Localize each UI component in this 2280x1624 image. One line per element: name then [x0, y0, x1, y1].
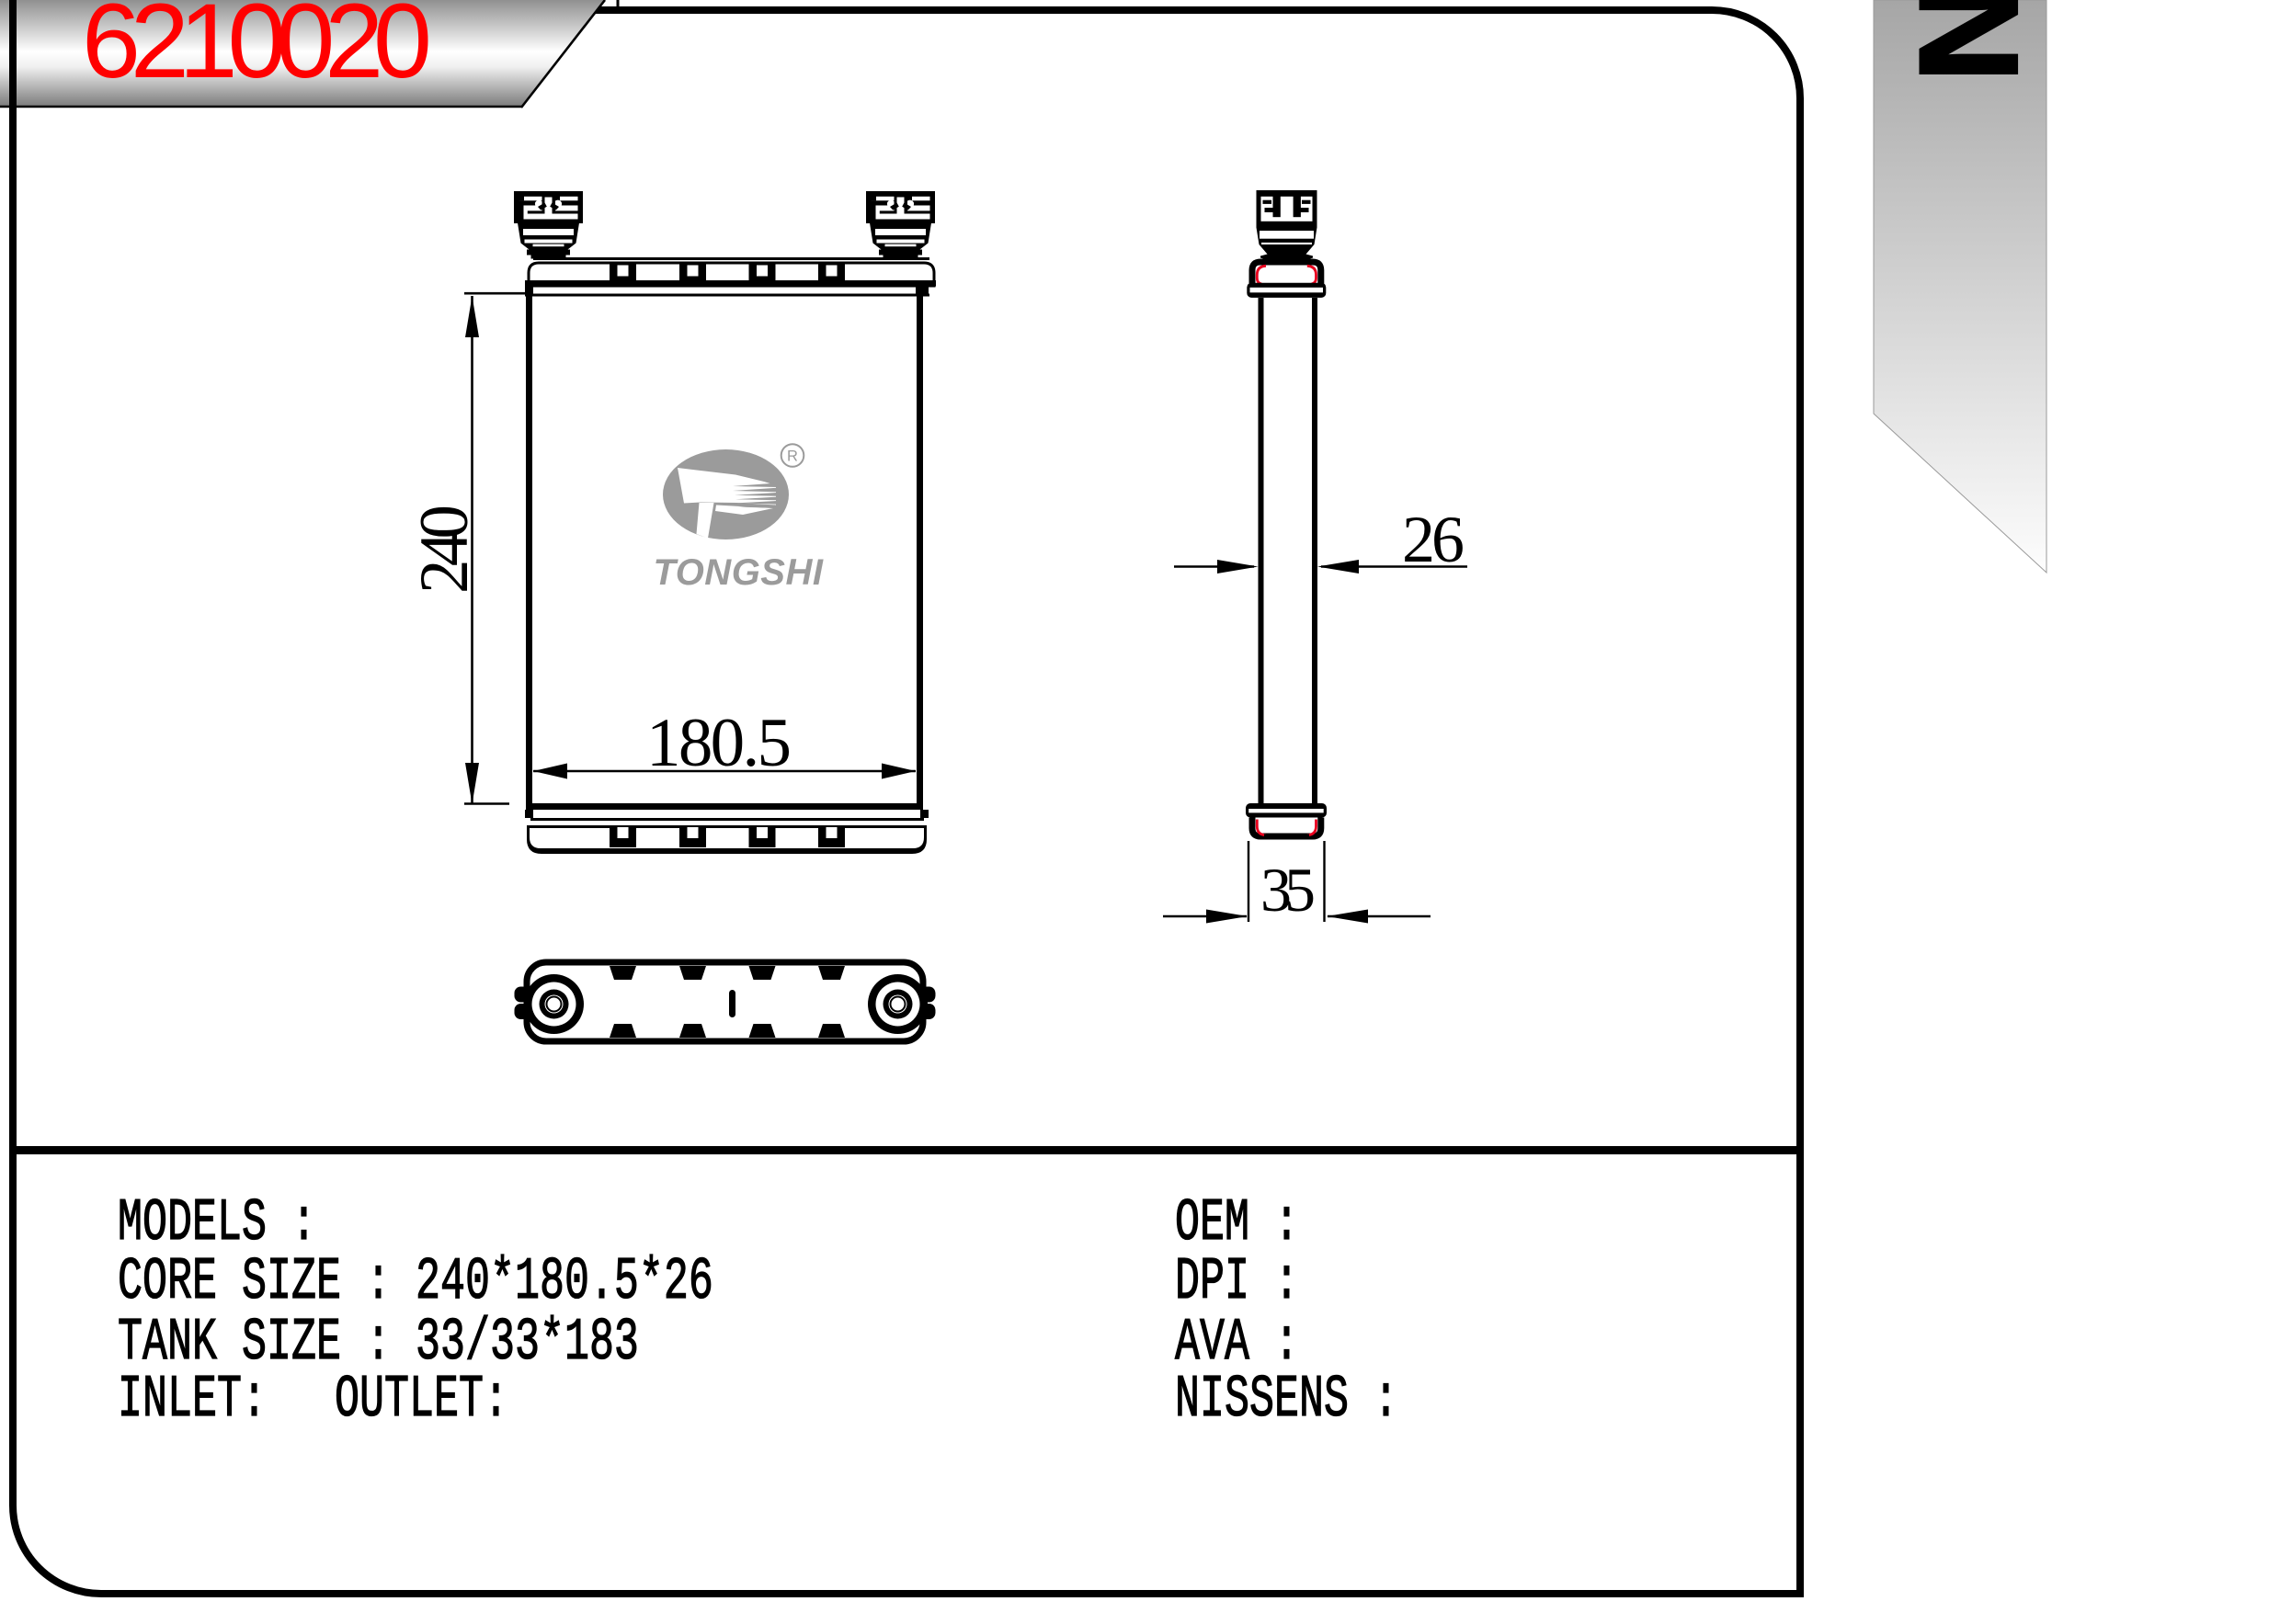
svg-text:6210020: 6210020 [82, 0, 432, 100]
svg-text:TONGSHI: TONGSHI [653, 552, 823, 593]
svg-text:OUTLET:: OUTLET: [335, 1365, 508, 1434]
svg-text:NISSENS :: NISSENS : [1175, 1365, 1398, 1434]
svg-text:CORE SIZE : 240*180.5*26: CORE SIZE : 240*180.5*26 [118, 1247, 713, 1316]
svg-text:35: 35 [1260, 855, 1316, 925]
svg-text:DPI :: DPI : [1175, 1247, 1299, 1316]
svg-text:180.5: 180.5 [646, 705, 792, 781]
svg-text:26: 26 [1402, 503, 1465, 576]
svg-text:240: 240 [406, 505, 483, 594]
svg-text:INLET:: INLET: [118, 1365, 267, 1434]
svg-text:N: N [1890, 0, 2046, 83]
svg-text:R: R [787, 449, 798, 465]
